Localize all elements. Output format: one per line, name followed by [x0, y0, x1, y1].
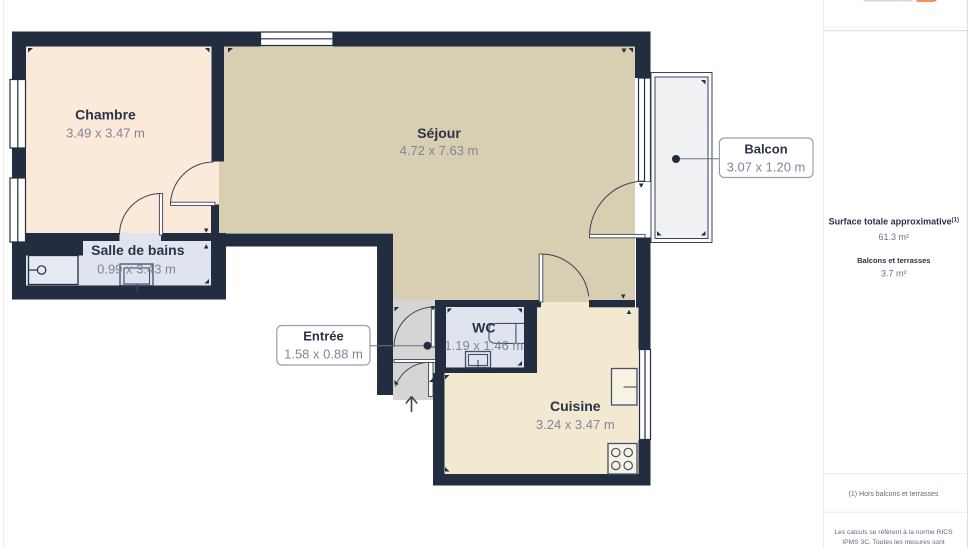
svg-text:3.24 x 3.47 m: 3.24 x 3.47 m — [536, 417, 615, 432]
svg-text:Balcon: Balcon — [744, 142, 787, 157]
svg-text:IPMS 3C. Toutes les mesures so: IPMS 3C. Toutes les mesures sont — [842, 539, 945, 546]
svg-text:Les calculs se réfèrent à la n: Les calculs se réfèrent à la norme RICS — [834, 529, 953, 536]
svg-text:Surface totale approximative(1: Surface totale approximative(1) — [829, 217, 959, 227]
svg-text:61.3 m²: 61.3 m² — [879, 232, 910, 242]
svg-text:3.7 m²: 3.7 m² — [881, 268, 907, 278]
svg-text:1.58 x 0.88 m: 1.58 x 0.88 m — [284, 347, 363, 362]
svg-text:0.99 x 3.43 m: 0.99 x 3.43 m — [97, 261, 176, 276]
svg-text:Entrée: Entrée — [303, 329, 343, 344]
svg-text:WC: WC — [472, 320, 495, 336]
svg-text:(1) Hors balcons et terrasses: (1) Hors balcons et terrasses — [849, 491, 939, 498]
svg-text:3.49 x 3.47 m: 3.49 x 3.47 m — [66, 125, 145, 140]
svg-text:1.19 x 1.46 m: 1.19 x 1.46 m — [444, 338, 523, 353]
svg-text:Séjour: Séjour — [417, 125, 461, 141]
svg-text:3.07 x 1.20 m: 3.07 x 1.20 m — [727, 160, 806, 175]
svg-text:Chambre: Chambre — [75, 107, 136, 123]
svg-text:Salle de bains: Salle de bains — [91, 242, 185, 258]
svg-text:Balcons et terrasses: Balcons et terrasses — [857, 256, 930, 265]
svg-text:Cuisine: Cuisine — [550, 398, 601, 414]
svg-text:4.72 x 7.63 m: 4.72 x 7.63 m — [400, 143, 479, 158]
